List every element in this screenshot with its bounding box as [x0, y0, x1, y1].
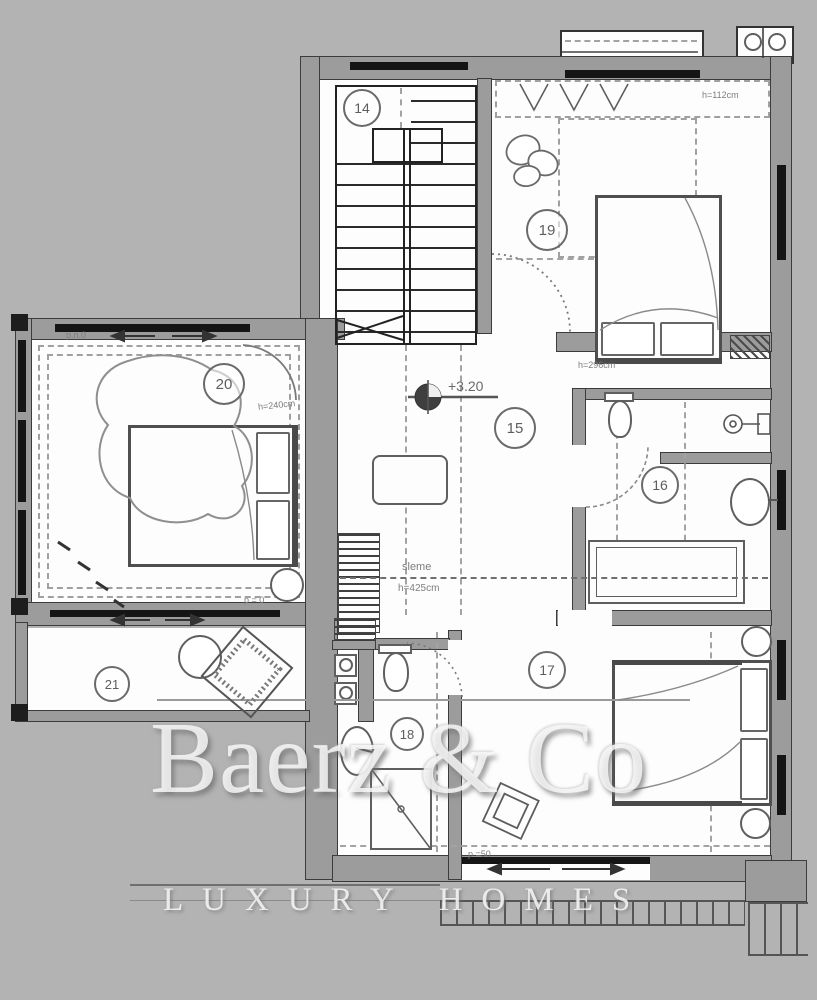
room-label-bed19: 19 [526, 209, 568, 251]
door-arc-room19 [492, 254, 570, 332]
room-number: 16 [652, 477, 668, 493]
shower-head-16 [724, 414, 770, 434]
ridge-height-annotation: h=425cm [398, 583, 439, 594]
wall-height-112: h=112cm [702, 90, 739, 100]
room-label-balcony: 21 [94, 666, 130, 702]
room-label-bed17: 17 [528, 651, 566, 689]
room-number: 17 [539, 662, 555, 678]
level-annotation: +3.20 [448, 378, 483, 394]
room-label-bath16: 16 [641, 466, 679, 504]
parapet-50-annotation: p =50 [468, 849, 491, 859]
hanger-icon [560, 84, 588, 110]
door-arc-room20 [243, 345, 296, 400]
watermark-brand: Baerz & Co [150, 700, 647, 817]
wall-height-296: h=296cm [578, 360, 615, 370]
chair-room19 [502, 130, 562, 188]
door-arc-bath16 [586, 447, 648, 507]
step-dashes [58, 542, 124, 607]
door-arc-room18 [407, 643, 462, 697]
room-number: 21 [105, 677, 119, 692]
stair-cut-mark [337, 316, 403, 338]
hanger-icon [520, 84, 548, 110]
room-label-hall: 15 [494, 407, 536, 449]
parapet-bottom-annotation: p = 0 [244, 595, 264, 605]
stair-cut-mark [337, 320, 403, 340]
blanket-line [618, 666, 738, 700]
plan-linework [0, 0, 817, 1000]
room-number: 14 [354, 100, 370, 116]
watermark-tagline: LUXURY HOMES [163, 882, 649, 919]
room-number: 15 [507, 420, 524, 437]
blanket-line [600, 309, 718, 330]
room-number: 19 [539, 222, 556, 239]
room-label-stairs: 14 [343, 89, 381, 127]
room-label-bed20: 20 [203, 363, 245, 405]
room-number: 20 [216, 376, 233, 393]
ridge-name-annotation: sleme [402, 561, 431, 573]
hanger-icon [600, 84, 628, 110]
parapet-top-annotation: p.n.0 [66, 330, 86, 340]
floor-plan: 14 15 16 17 18 19 20 21 +3.20 sleme h=42… [0, 0, 817, 1000]
